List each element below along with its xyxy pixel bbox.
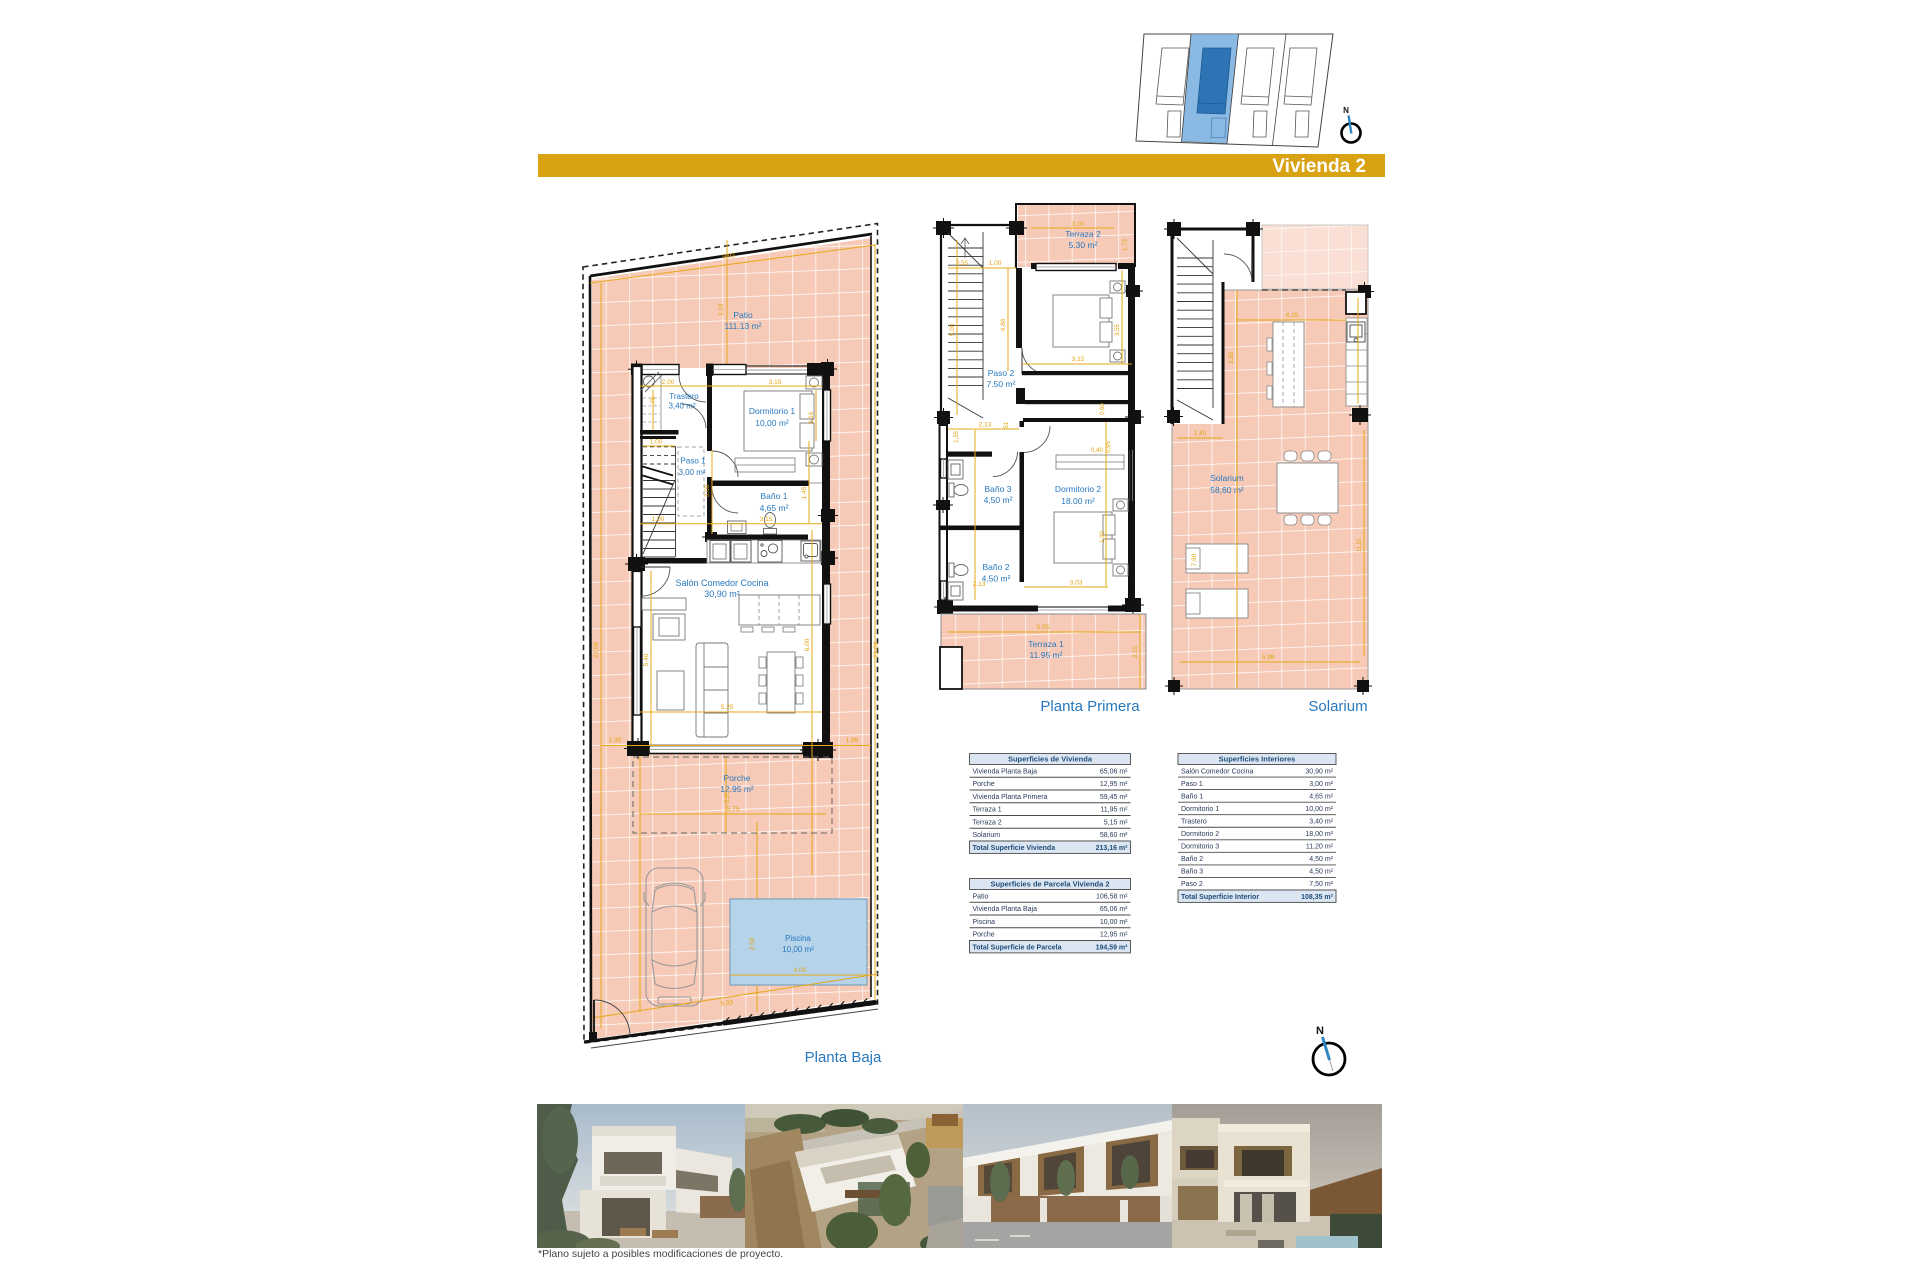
svg-text:Total Superficie Interior: Total Superficie Interior bbox=[1181, 894, 1259, 901]
svg-text:1,73: 1,73 bbox=[1123, 239, 1129, 251]
svg-text:Baño 1: Baño 1 bbox=[761, 491, 788, 501]
svg-text:2,15: 2,15 bbox=[1133, 646, 1139, 658]
svg-text:22,08: 22,08 bbox=[593, 641, 600, 658]
svg-text:1,35: 1,35 bbox=[954, 431, 960, 443]
svg-text:2,50: 2,50 bbox=[749, 937, 756, 950]
svg-text:5,25: 5,25 bbox=[721, 704, 734, 711]
svg-text:10,00 m²: 10,00 m² bbox=[782, 945, 814, 954]
svg-text:2,13: 2,13 bbox=[973, 581, 986, 588]
svg-text:Solarium: Solarium bbox=[1210, 473, 1244, 483]
svg-text:3,15: 3,15 bbox=[769, 379, 782, 386]
svg-text:1,00: 1,00 bbox=[650, 439, 663, 446]
svg-text:0,40: 0,40 bbox=[1091, 448, 1103, 454]
svg-text:30,90 m²: 30,90 m² bbox=[1305, 768, 1333, 775]
svg-text:5,15 m²: 5,15 m² bbox=[1104, 819, 1128, 826]
svg-text:Baño 3: Baño 3 bbox=[985, 484, 1012, 494]
svg-text:1,35: 1,35 bbox=[609, 737, 622, 744]
svg-text:3,20: 3,20 bbox=[718, 303, 725, 316]
svg-text:Porche: Porche bbox=[724, 773, 751, 783]
svg-text:5,98: 5,98 bbox=[1262, 654, 1275, 661]
svg-text:1,45: 1,45 bbox=[801, 486, 808, 499]
svg-text:Porche: Porche bbox=[973, 781, 995, 788]
svg-text:4,65 m²: 4,65 m² bbox=[760, 503, 789, 513]
svg-text:4,15: 4,15 bbox=[1286, 312, 1299, 319]
svg-text:,51: ,51 bbox=[1004, 421, 1010, 430]
svg-text:,70: ,70 bbox=[651, 396, 657, 405]
svg-text:Paso 1: Paso 1 bbox=[1181, 781, 1203, 788]
svg-text:65,06 m²: 65,06 m² bbox=[1100, 768, 1128, 775]
svg-text:5,75: 5,75 bbox=[727, 806, 740, 813]
svg-text:22,09: 22,09 bbox=[873, 641, 880, 658]
svg-text:Terraza 1: Terraza 1 bbox=[973, 807, 1002, 814]
svg-text:Planta Baja: Planta Baja bbox=[805, 1049, 882, 1066]
svg-text:58,60 m²: 58,60 m² bbox=[1100, 832, 1128, 839]
svg-text:10,00 m²: 10,00 m² bbox=[755, 418, 789, 428]
svg-text:1,00: 1,00 bbox=[989, 260, 1002, 267]
svg-text:Superficies de Vivienda: Superficies de Vivienda bbox=[1008, 755, 1093, 764]
svg-text:Vivienda Planta Baja: Vivienda Planta Baja bbox=[973, 906, 1038, 913]
svg-text:Vivienda Planta Primera: Vivienda Planta Primera bbox=[973, 794, 1048, 801]
svg-text:12,95 m²: 12,95 m² bbox=[1100, 932, 1128, 939]
svg-text:Terraza 2: Terraza 2 bbox=[973, 819, 1002, 826]
svg-text:Solarium: Solarium bbox=[1308, 698, 1367, 715]
svg-text:Paso 2: Paso 2 bbox=[1181, 881, 1203, 888]
svg-text:0,60: 0,60 bbox=[1100, 403, 1106, 415]
svg-text:Baño 3: Baño 3 bbox=[1181, 869, 1203, 876]
svg-text:Patio: Patio bbox=[733, 310, 753, 320]
svg-text:12,95 m²: 12,95 m² bbox=[1100, 781, 1128, 788]
svg-text:3,15: 3,15 bbox=[760, 516, 773, 523]
svg-text:Baño 2: Baño 2 bbox=[983, 562, 1010, 572]
svg-text:Trastero: Trastero bbox=[669, 392, 699, 401]
svg-text:5,55: 5,55 bbox=[1037, 624, 1050, 631]
svg-text:Trastero: Trastero bbox=[1181, 818, 1207, 825]
svg-text:1,00: 1,00 bbox=[652, 516, 665, 523]
svg-text:3,15: 3,15 bbox=[1072, 356, 1085, 363]
svg-text:3,40 m²: 3,40 m² bbox=[668, 402, 695, 411]
svg-text:Baño 2: Baño 2 bbox=[1181, 856, 1203, 863]
svg-text:3,00 m²: 3,00 m² bbox=[678, 468, 705, 477]
svg-text:3,00 m²: 3,00 m² bbox=[1309, 781, 1333, 788]
svg-text:6,00: 6,00 bbox=[804, 638, 811, 651]
svg-text:7,50 m²: 7,50 m² bbox=[1309, 881, 1333, 888]
svg-text:65,06 m²: 65,06 m² bbox=[1100, 906, 1128, 913]
svg-text:Paso 1: Paso 1 bbox=[681, 457, 706, 466]
svg-text:2,00: 2,00 bbox=[662, 379, 675, 386]
svg-text:Vivienda 2: Vivienda 2 bbox=[1272, 156, 1366, 177]
svg-text:3,40 m²: 3,40 m² bbox=[1309, 818, 1333, 825]
svg-text:Superficies Interiores: Superficies Interiores bbox=[1219, 755, 1296, 764]
svg-text:3,03: 3,03 bbox=[1070, 580, 1083, 587]
svg-text:18,00 m²: 18,00 m² bbox=[1305, 831, 1333, 838]
svg-text:7.50 m²: 7.50 m² bbox=[987, 379, 1016, 389]
svg-text:Baño 1: Baño 1 bbox=[1181, 793, 1203, 800]
svg-text:213,16 m²: 213,16 m² bbox=[1096, 845, 1129, 852]
svg-text:30,90 m²: 30,90 m² bbox=[704, 589, 740, 599]
svg-text:58,60 m²: 58,60 m² bbox=[1210, 485, 1244, 495]
svg-text:4,50 m²: 4,50 m² bbox=[1309, 856, 1333, 863]
svg-text:11,20 m²: 11,20 m² bbox=[1306, 844, 1334, 851]
svg-text:5.30 m²: 5.30 m² bbox=[1069, 240, 1098, 250]
svg-text:11.95 m²: 11.95 m² bbox=[1030, 650, 1063, 660]
svg-text:N: N bbox=[1343, 106, 1349, 115]
svg-text:4,86: 4,86 bbox=[1000, 318, 1007, 331]
svg-text:0,95: 0,95 bbox=[1106, 441, 1112, 453]
svg-text:Planta Primera: Planta Primera bbox=[1040, 698, 1140, 715]
svg-text:1,40: 1,40 bbox=[1194, 430, 1207, 437]
svg-text:111.13 m²: 111.13 m² bbox=[724, 321, 761, 331]
svg-text:Salón Comedor Cocina: Salón Comedor Cocina bbox=[1181, 768, 1253, 775]
svg-text:1,90: 1,90 bbox=[1100, 531, 1106, 543]
svg-text:Vivienda Planta Baja: Vivienda Planta Baja bbox=[973, 768, 1038, 775]
svg-text:7,60: 7,60 bbox=[1191, 553, 1198, 566]
svg-text:Dormitorio 2: Dormitorio 2 bbox=[1181, 831, 1219, 838]
svg-text:Salón Comedor Cocina: Salón Comedor Cocina bbox=[675, 578, 768, 588]
svg-text:3,55: 3,55 bbox=[1115, 324, 1121, 336]
svg-text:4,50 m²: 4,50 m² bbox=[982, 574, 1011, 584]
svg-text:3,00: 3,00 bbox=[704, 484, 711, 497]
svg-text:4,50 m²: 4,50 m² bbox=[984, 495, 1013, 505]
svg-text:18.00 m²: 18.00 m² bbox=[1061, 496, 1095, 506]
svg-text:106,58 m²: 106,58 m² bbox=[1096, 893, 1128, 900]
svg-text:Terraza 2: Terraza 2 bbox=[1065, 229, 1101, 239]
svg-text:4,50 m²: 4,50 m² bbox=[1309, 869, 1333, 876]
svg-text:Total Superficie de Parcela: Total Superficie de Parcela bbox=[973, 945, 1062, 952]
svg-text:3,16: 3,16 bbox=[808, 411, 815, 424]
svg-text:11,51: 11,51 bbox=[1357, 537, 1363, 552]
svg-text:5,08: 5,08 bbox=[949, 323, 956, 336]
svg-text:0,55: 0,55 bbox=[956, 261, 968, 267]
svg-text:Superficies de Parcela Viviend: Superficies de Parcela Vivienda 2 bbox=[990, 880, 1109, 889]
svg-text:10,00 m²: 10,00 m² bbox=[1100, 919, 1128, 926]
svg-text:3,00: 3,00 bbox=[1072, 221, 1085, 228]
svg-text:3,85: 3,85 bbox=[1228, 351, 1235, 364]
svg-text:Total Superficie Vivienda: Total Superficie Vivienda bbox=[973, 845, 1056, 852]
svg-text:Terraza 1: Terraza 1 bbox=[1028, 639, 1064, 649]
svg-text:Dormitorio 1: Dormitorio 1 bbox=[749, 406, 796, 416]
svg-text:4,00: 4,00 bbox=[794, 967, 807, 974]
svg-text:194,59 m²: 194,59 m² bbox=[1096, 945, 1129, 952]
svg-text:Patio: Patio bbox=[973, 893, 989, 900]
svg-text:59,45 m²: 59,45 m² bbox=[1100, 794, 1128, 801]
svg-text:2,13: 2,13 bbox=[979, 422, 992, 429]
svg-text:Dormitorio 1: Dormitorio 1 bbox=[1181, 806, 1219, 813]
svg-text:Dormitorio 3: Dormitorio 3 bbox=[1181, 844, 1219, 851]
svg-text:1,86: 1,86 bbox=[846, 737, 859, 744]
svg-text:Paso 2: Paso 2 bbox=[988, 368, 1015, 378]
svg-text:4,65 m²: 4,65 m² bbox=[1309, 793, 1333, 800]
svg-text:Piscina: Piscina bbox=[973, 919, 996, 926]
svg-text:Porche: Porche bbox=[973, 932, 995, 939]
svg-text:10,00 m²: 10,00 m² bbox=[1305, 806, 1333, 813]
svg-text:Dormitorio 2: Dormitorio 2 bbox=[1055, 484, 1102, 494]
svg-text:*Plano sujeto a posibles modif: *Plano sujeto a posibles modificaciones … bbox=[538, 1248, 783, 1260]
svg-text:108,35 m²: 108,35 m² bbox=[1301, 894, 1334, 901]
svg-text:11,95 m²: 11,95 m² bbox=[1100, 807, 1128, 814]
svg-text:Piscina: Piscina bbox=[785, 934, 811, 943]
svg-text:Solarium: Solarium bbox=[973, 832, 1001, 839]
svg-text:5,40: 5,40 bbox=[643, 653, 650, 666]
svg-text:N: N bbox=[1316, 1025, 1324, 1037]
svg-text:2,25: 2,25 bbox=[725, 791, 731, 803]
